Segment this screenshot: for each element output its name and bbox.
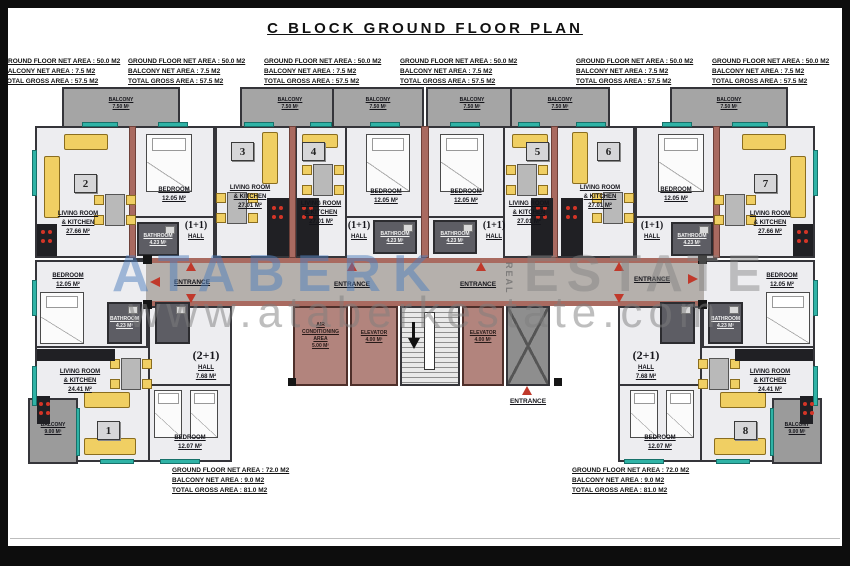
unit-number-5: 5	[526, 142, 549, 161]
summary-line: BALCONY NET AREA : 7.5 M2	[712, 67, 832, 77]
unit-2-bedroom-label: BEDROOM12.05 M²	[150, 186, 198, 204]
unit-8-bedroom-1-label: BEDROOM12.05 M²	[758, 272, 806, 290]
entrance-arrow-up-icon	[476, 262, 486, 271]
dining-table	[105, 194, 125, 226]
stove-icon	[39, 402, 43, 406]
unit-7-bedroom-label: BEDROOM12.05 M²	[652, 186, 700, 204]
bathroom-label: BATHROOM	[375, 231, 415, 238]
entrance-arrow-left-icon	[150, 277, 160, 287]
wall	[421, 126, 429, 258]
dining-table	[313, 164, 333, 196]
balcony-area: 9.00 M²	[30, 429, 76, 436]
balcony-area: 7.50 M²	[672, 104, 786, 111]
unit-number-4: 4	[302, 142, 325, 161]
sofa	[572, 132, 588, 184]
sofa	[64, 134, 108, 150]
balcony-label: BALCONY	[774, 422, 820, 429]
sofa	[84, 438, 136, 455]
kitchen-counter	[735, 349, 813, 361]
entrance-label-south: ENTRANCE	[499, 397, 557, 407]
window	[813, 280, 818, 316]
area-summary-top-1: GROUND FLOOR NET AREA : 50.0 M2 BALCONY …	[3, 57, 123, 86]
bathroom-area: 4.23 M²	[673, 240, 711, 247]
bed	[190, 390, 218, 438]
entrance-arrow-up-icon	[522, 386, 532, 395]
unit-7-bathroom: BATHROOM4.23 M²	[671, 222, 713, 256]
unit-8-type-label: (2+1)	[626, 346, 666, 364]
ac-label: CONDITIONING	[295, 329, 346, 336]
balcony-unit-1: BALCONY9.00 M²	[28, 398, 78, 464]
summary-line: GROUND FLOOR NET AREA : 72.0 M2	[172, 466, 292, 476]
dining-set	[302, 162, 344, 198]
summary-line: TOTAL GROSS AREA : 57.5 M2	[3, 77, 123, 87]
unit-2-bathroom: BATHROOM4.23 M²	[137, 222, 179, 256]
summary-line: TOTAL GROSS AREA : 57.5 M2	[400, 77, 520, 87]
entrance-arrow-right-icon	[688, 274, 698, 284]
page-title: C BLOCK GROUND FLOOR PLAN	[0, 20, 850, 37]
summary-line: BALCONY NET AREA : 9.0 M2	[172, 476, 292, 486]
column	[288, 378, 296, 386]
stair-direction-arrow	[412, 322, 415, 338]
window	[158, 122, 188, 127]
elevator-right: ELEVATOR 4.00 M²	[462, 306, 504, 386]
summary-line: BALCONY NET AREA : 7.5 M2	[264, 67, 384, 77]
area-summary-bottom-left: GROUND FLOOR NET AREA : 72.0 M2 BALCONY …	[172, 466, 292, 495]
summary-line: TOTAL GROSS AREA : 57.5 M2	[576, 77, 696, 87]
window	[662, 122, 692, 127]
bed	[766, 292, 810, 344]
footer-divider-line	[10, 538, 840, 539]
window	[76, 408, 80, 456]
dining-set	[506, 162, 548, 198]
kitchen-counter	[37, 396, 50, 424]
ac-label: AREA	[295, 336, 346, 343]
unit-1-bathroom: BATHROOM4.23 M²	[107, 302, 142, 344]
kitchen-counter	[37, 349, 115, 361]
summary-line: TOTAL GROSS AREA : 81.0 M2	[172, 486, 292, 496]
balcony-area: 9.00 M²	[774, 429, 820, 436]
bathroom-area: 4.23 M²	[435, 238, 475, 245]
area-summary-top-3: GROUND FLOOR NET AREA : 50.0 M2 BALCONY …	[264, 57, 384, 86]
bed	[154, 390, 182, 438]
column	[554, 378, 562, 386]
dining-table	[517, 164, 537, 196]
unit-1-type-label: (2+1)	[186, 346, 226, 364]
window	[813, 366, 818, 406]
bathroom-label: BATHROOM	[673, 233, 711, 240]
window	[576, 122, 606, 127]
unit-5-living-label: LIVING ROOM& KITCHEN27.01 M²	[504, 200, 554, 227]
summary-line: GROUND FLOOR NET AREA : 50.0 M2	[576, 57, 696, 67]
sofa	[44, 156, 60, 218]
unit-number-8: 8	[734, 421, 757, 440]
dining-set	[110, 356, 152, 392]
bed	[366, 134, 410, 192]
window	[813, 150, 818, 196]
summary-line: GROUND FLOOR NET AREA : 72.0 M2	[572, 466, 692, 476]
elevator-left: ELEVATOR 4.00 M²	[350, 306, 398, 386]
balcony-area: 7.50 M²	[428, 104, 516, 111]
unit-4-living-label: LIVING ROOM& KITCHEN27.01 M²	[296, 200, 346, 227]
unit-2-type-label: (1+1)HALL	[178, 218, 214, 242]
summary-line: BALCONY NET AREA : 7.5 M2	[3, 67, 123, 77]
summary-line: BALCONY NET AREA : 9.0 M2	[572, 476, 692, 486]
floor-plan-page: C BLOCK GROUND FLOOR PLAN GROUND FLOOR N…	[0, 0, 850, 566]
dining-table	[725, 194, 745, 226]
summary-line: TOTAL GROSS AREA : 81.0 M2	[572, 486, 692, 496]
entrance-vestibule	[506, 306, 550, 386]
window	[32, 366, 37, 406]
bottom-frame-bar	[0, 546, 850, 566]
balcony-area: 7.50 M²	[242, 104, 338, 111]
balcony-label: BALCONY	[428, 97, 516, 104]
balcony-label: BALCONY	[64, 97, 178, 104]
entrance-label-center-left: ENTRANCE	[323, 280, 381, 290]
unit-number-2: 2	[74, 174, 97, 193]
summary-line: GROUND FLOOR NET AREA : 50.0 M2	[264, 57, 384, 67]
unit-1-bedroom-2-label: BEDROOM12.07 M²	[166, 434, 214, 452]
bed	[666, 390, 694, 438]
bathroom-label: BATHROOM	[109, 316, 140, 323]
bed	[658, 134, 704, 192]
balcony-label: BALCONY	[334, 97, 422, 104]
bathroom-area: 4.23 M²	[710, 323, 741, 330]
balcony-area: 7.50 M²	[512, 104, 608, 111]
unit-3-living-label: LIVING ROOM& KITCHEN27.01 M²	[226, 184, 274, 211]
unit-number-1: 1	[97, 421, 120, 440]
unit-number-6: 6	[597, 142, 620, 161]
summary-line: GROUND FLOOR NET AREA : 50.0 M2	[400, 57, 520, 67]
unit-1-wc	[155, 302, 190, 344]
window	[624, 459, 664, 464]
stove-icon	[566, 206, 570, 210]
bathroom-area: 4.23 M²	[375, 238, 415, 245]
sofa	[714, 438, 766, 455]
kitchen-counter	[793, 224, 813, 256]
window	[310, 122, 332, 127]
summary-line: BALCONY NET AREA : 7.5 M2	[400, 67, 520, 77]
column	[698, 255, 707, 264]
unit-6-living-label: LIVING ROOM& KITCHEN27.01 M²	[576, 184, 624, 211]
balcony-label: BALCONY	[512, 97, 608, 104]
unit-7-type-label: (1+1)HALL	[634, 218, 670, 242]
unit-1-living-label: LIVING ROOM& KITCHEN24.41 M²	[56, 368, 104, 395]
dining-table	[121, 358, 141, 390]
unit-number-3: 3	[231, 142, 254, 161]
summary-line: BALCONY NET AREA : 7.5 M2	[576, 67, 696, 77]
summary-line: TOTAL GROSS AREA : 57.5 M2	[264, 77, 384, 87]
bathroom-area: 4.23 M²	[139, 240, 177, 247]
unit-8-bathroom: BATHROOM4.23 M²	[708, 302, 743, 344]
stove-icon	[797, 230, 801, 234]
bed	[146, 134, 192, 192]
window	[82, 122, 118, 127]
sofa	[742, 134, 786, 150]
sofa	[262, 132, 278, 184]
bed	[40, 292, 84, 344]
window	[100, 459, 134, 464]
balcony-unit-8: BALCONY9.00 M²	[772, 398, 822, 464]
unit-3-4-bathroom: BATHROOM4.23 M²	[373, 220, 417, 254]
entrance-label-east: ENTRANCE	[623, 275, 681, 285]
sofa	[790, 156, 806, 218]
unit-8-living-label: LIVING ROOM& KITCHEN24.41 M²	[746, 368, 794, 395]
entrance-arrow-up-icon	[347, 262, 357, 271]
area-summary-top-5: GROUND FLOOR NET AREA : 50.0 M2 BALCONY …	[576, 57, 696, 86]
elevator-area: 4.00 M²	[352, 337, 396, 344]
column	[143, 300, 152, 309]
stair-down-arrow-icon	[408, 338, 420, 349]
kitchen-counter	[800, 396, 813, 424]
window	[32, 280, 37, 316]
summary-line: TOTAL GROSS AREA : 57.5 M2	[128, 77, 248, 87]
balcony-area: 7.50 M²	[334, 104, 422, 111]
unit-1-bedroom-1-label: BEDROOM12.05 M²	[44, 272, 92, 290]
bathroom-label: BATHROOM	[710, 316, 741, 323]
elevator-label: ELEVATOR	[352, 330, 396, 337]
summary-line: GROUND FLOOR NET AREA : 50.0 M2	[3, 57, 123, 67]
window	[244, 122, 274, 127]
balcony-area: 7.50 M²	[64, 104, 178, 111]
corridor-arrow-up-icon	[186, 262, 196, 271]
unit-1-hall-label: HALL7.68 M²	[186, 364, 226, 382]
dining-set	[698, 356, 740, 392]
unit-4-bedroom-label: BEDROOM12.05 M²	[362, 188, 410, 206]
area-summary-top-6: GROUND FLOOR NET AREA : 50.0 M2 BALCONY …	[712, 57, 832, 86]
summary-line: GROUND FLOOR NET AREA : 50.0 M2	[128, 57, 248, 67]
unit-number-7: 7	[754, 174, 777, 193]
bed	[440, 134, 484, 192]
unit-5-bedroom-label: BEDROOM12.05 M²	[442, 188, 490, 206]
ac-label: AIR	[295, 322, 346, 329]
wall	[289, 126, 296, 258]
bathroom-area: 4.23 M²	[109, 323, 140, 330]
elevator-label: ELEVATOR	[464, 330, 502, 337]
window	[770, 408, 774, 456]
entrance-label-west: ENTRANCE	[163, 278, 221, 288]
summary-line: GROUND FLOOR NET AREA : 50.0 M2	[712, 57, 832, 67]
air-conditioning-room: AIR CONDITIONING AREA 5.00 M²	[293, 306, 348, 386]
balcony-label: BALCONY	[242, 97, 338, 104]
corridor-arrow-up-icon	[614, 262, 624, 271]
balcony-label: BALCONY	[672, 97, 786, 104]
stove-icon	[803, 402, 807, 406]
unit-8-bedroom-2-label: BEDROOM12.07 M²	[636, 434, 684, 452]
window	[160, 459, 200, 464]
unit-3-4-type-label: (1+1)HALL	[343, 218, 375, 242]
column	[143, 255, 152, 264]
area-summary-top-4: GROUND FLOOR NET AREA : 50.0 M2 BALCONY …	[400, 57, 520, 86]
elevator-area: 4.00 M²	[464, 337, 502, 344]
window	[518, 122, 540, 127]
unit-7-living-label: LIVING ROOM& KITCHEN27.66 M²	[746, 210, 794, 237]
stair-rail	[424, 312, 435, 370]
corridor-arrow-down-icon	[614, 294, 624, 303]
dining-table	[709, 358, 729, 390]
area-summary-bottom-right: GROUND FLOOR NET AREA : 72.0 M2 BALCONY …	[572, 466, 692, 495]
entrance-label-center-right: ENTRANCE	[449, 280, 507, 290]
unit-8-wc	[660, 302, 695, 344]
window	[32, 150, 37, 196]
area-summary-top-2: GROUND FLOOR NET AREA : 50.0 M2 BALCONY …	[128, 57, 248, 86]
stove-icon	[41, 230, 45, 234]
column	[698, 300, 707, 309]
bathroom-label: BATHROOM	[139, 233, 177, 240]
unit-5-6-bathroom: BATHROOM4.23 M²	[433, 220, 477, 254]
unit-5-6-type-label: (1+1)HALL	[478, 218, 510, 242]
corridor-arrow-down-icon	[186, 294, 196, 303]
bathroom-label: BATHROOM	[435, 231, 475, 238]
unit-8-hall-label: HALL7.68 M²	[626, 364, 666, 382]
window	[732, 122, 768, 127]
window	[716, 459, 750, 464]
unit-2-living-label: LIVING ROOM& KITCHEN27.66 M²	[54, 210, 102, 237]
window	[450, 122, 480, 127]
window	[370, 122, 400, 127]
bed	[630, 390, 658, 438]
summary-line: BALCONY NET AREA : 7.5 M2	[128, 67, 248, 77]
summary-line: TOTAL GROSS AREA : 57.5 M2	[712, 77, 832, 87]
ac-area: 5.00 M²	[295, 343, 346, 350]
